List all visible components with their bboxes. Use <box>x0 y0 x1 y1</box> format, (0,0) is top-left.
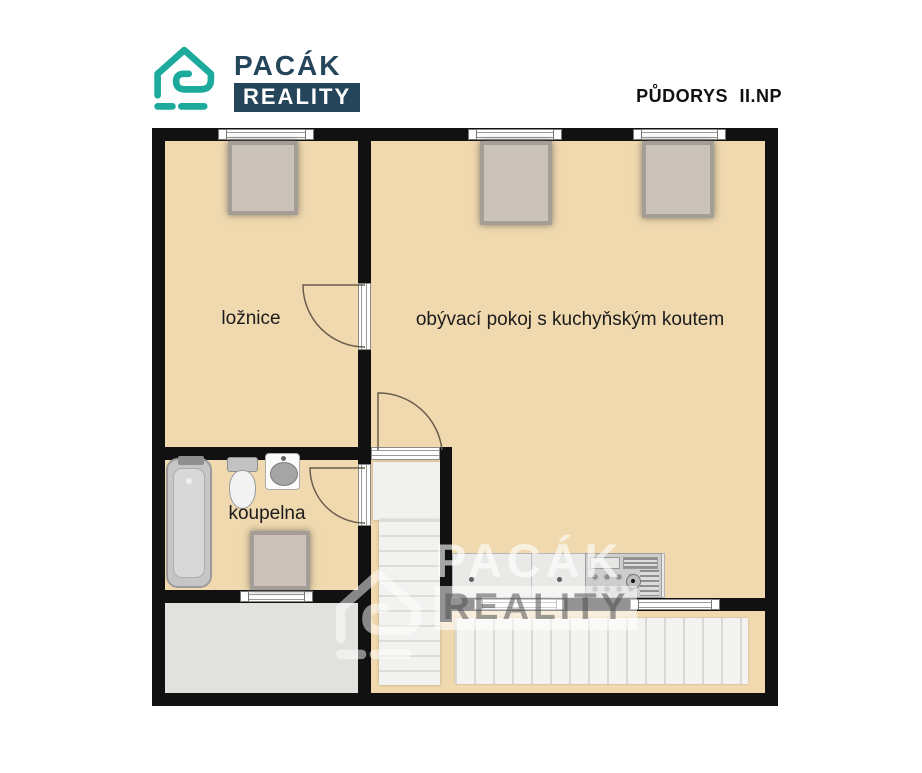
logo-name: PACÁK <box>234 52 360 80</box>
bathtub-faucet <box>178 456 204 465</box>
room-label-bathroom: koupelna <box>207 503 327 525</box>
room-label-bedroom: ložnice <box>191 308 311 330</box>
floorplan: ložnice obývací pokoj s kuchyňským koute… <box>152 128 778 706</box>
logo-suffix: REALITY <box>234 83 360 112</box>
floorplan-image: PACÁK REALITY PŮDORYS II.NP <box>0 0 922 773</box>
agency-logo: PACÁK REALITY <box>148 40 360 118</box>
bathtub <box>166 458 212 588</box>
washbasin <box>265 453 300 490</box>
house-logo-icon <box>148 40 222 118</box>
room-label-living: obývací pokoj s kuchyňským koutem <box>370 309 770 331</box>
cooker <box>585 553 662 598</box>
page-title: PŮDORYS II.NP <box>560 86 782 107</box>
door-swing-arcs <box>152 128 778 706</box>
